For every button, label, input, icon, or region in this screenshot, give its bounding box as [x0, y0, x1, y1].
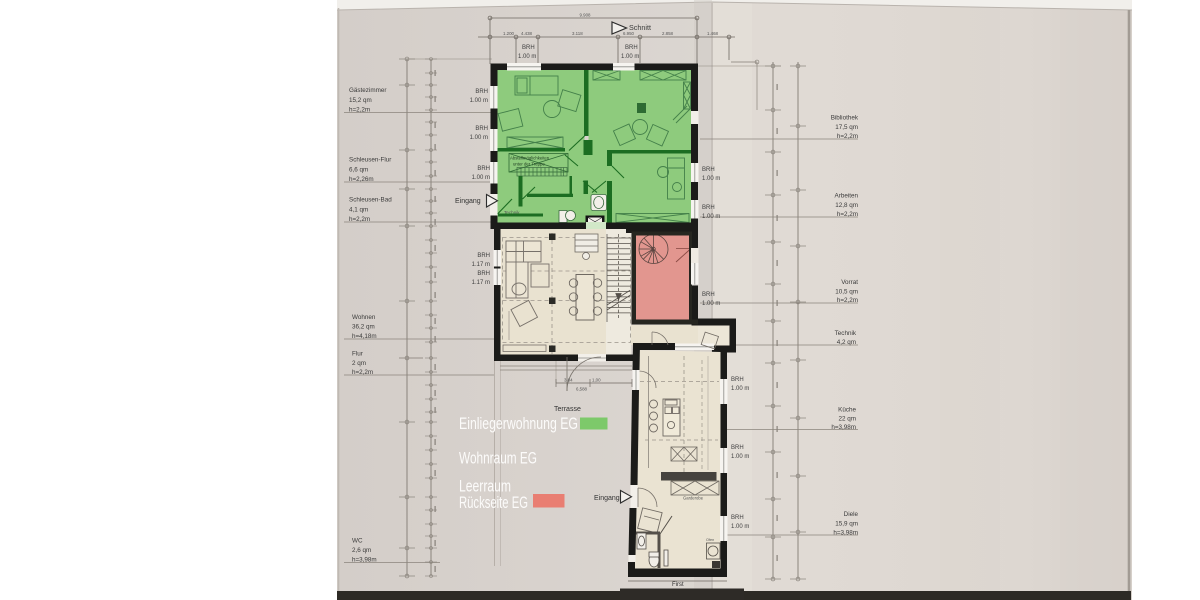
svg-text:h=2,2m: h=2,2m: [349, 107, 370, 114]
svg-text:1.00 m: 1.00 m: [470, 98, 488, 104]
svg-text:Eingang: Eingang: [455, 198, 481, 205]
svg-text:Schleusen-Bad: Schleusen-Bad: [349, 197, 392, 204]
svg-text:BRH: BRH: [477, 166, 490, 172]
svg-text:h=2,26m: h=2,26m: [349, 176, 374, 183]
svg-text:BRH: BRH: [702, 205, 715, 211]
svg-text:h=2,2m: h=2,2m: [352, 369, 373, 376]
svg-text:1.17 m: 1.17 m: [472, 262, 490, 268]
svg-text:1.00 m: 1.00 m: [472, 175, 490, 181]
svg-text:1.00 m: 1.00 m: [731, 386, 749, 392]
svg-text:Vorrat: Vorrat: [841, 279, 858, 286]
svg-text:6.950: 6.950: [623, 31, 635, 36]
svg-text:1.00 m: 1.00 m: [702, 176, 720, 182]
svg-text:WC: WC: [352, 538, 363, 545]
svg-text:6,588: 6,588: [576, 387, 588, 392]
svg-text:BRH: BRH: [731, 515, 744, 521]
svg-text:Technik: Technik: [835, 330, 857, 337]
svg-text:h=4,18m: h=4,18m: [352, 333, 377, 340]
svg-text:1.00 m: 1.00 m: [731, 524, 749, 530]
svg-text:4,1 qm: 4,1 qm: [349, 207, 368, 214]
svg-text:Eingang: Eingang: [594, 495, 620, 502]
svg-text:Wohnraum EG: Wohnraum EG: [459, 450, 537, 468]
svg-text:Schleusen-Flur: Schleusen-Flur: [349, 157, 391, 164]
svg-text:1.468: 1.468: [707, 31, 719, 36]
svg-text:17,5 qm: 17,5 qm: [835, 124, 858, 131]
svg-text:1.00 m: 1.00 m: [518, 54, 536, 60]
svg-text:2.858: 2.858: [662, 31, 674, 36]
svg-text:h=3,98m: h=3,98m: [833, 530, 858, 537]
svg-text:h=2,2m: h=2,2m: [349, 216, 370, 223]
svg-text:h=3,98m: h=3,98m: [352, 557, 377, 564]
svg-text:2 qm: 2 qm: [352, 360, 366, 367]
svg-text:Bibliothek: Bibliothek: [831, 115, 859, 122]
svg-text:Diele: Diele: [844, 511, 859, 518]
svg-text:BRH: BRH: [731, 377, 744, 383]
svg-text:4.438: 4.438: [521, 31, 533, 36]
svg-text:6,6 qm: 6,6 qm: [349, 167, 368, 174]
svg-text:1.17 m: 1.17 m: [472, 280, 490, 286]
svg-text:Arbeiten: Arbeiten: [835, 193, 859, 200]
svg-text:Flur: Flur: [352, 351, 363, 358]
svg-text:BRH: BRH: [731, 445, 744, 451]
svg-text:1.00 m: 1.00 m: [702, 301, 720, 307]
svg-text:Garderobe: Garderobe: [683, 496, 704, 501]
svg-text:9.908: 9.908: [580, 13, 592, 18]
svg-text:12,8 qm: 12,8 qm: [835, 202, 858, 209]
svg-text:BRH: BRH: [477, 271, 490, 277]
svg-text:BRH: BRH: [702, 167, 715, 173]
svg-text:BRH: BRH: [702, 292, 715, 298]
svg-text:h=3,98m: h=3,98m: [831, 424, 856, 431]
svg-text:1.00 m: 1.00 m: [731, 454, 749, 460]
svg-text:Abstellmöglichkeiten: Abstellmöglichkeiten: [510, 156, 550, 161]
svg-text:Wohnen: Wohnen: [352, 314, 376, 321]
svg-text:1.00 m: 1.00 m: [621, 54, 639, 60]
svg-text:15,2 qm: 15,2 qm: [349, 97, 372, 104]
svg-text:3.118: 3.118: [572, 31, 583, 36]
svg-text:15,9 qm: 15,9 qm: [835, 521, 858, 528]
svg-text:Leerraum: Leerraum: [459, 478, 511, 496]
svg-text:BRH: BRH: [475, 126, 488, 132]
svg-text:h=2,2m: h=2,2m: [837, 133, 858, 140]
svg-text:Terrasse: Terrasse: [554, 406, 581, 413]
svg-text:unter der Treppe: unter der Treppe: [513, 162, 545, 167]
svg-text:2,6 qm: 2,6 qm: [352, 547, 371, 554]
svg-text:3,84: 3,84: [564, 378, 573, 383]
svg-text:h=2,2m: h=2,2m: [837, 211, 858, 218]
svg-text:Rückseite EG: Rückseite EG: [459, 494, 528, 512]
svg-text:4,2 qm: 4,2 qm: [837, 339, 856, 346]
svg-text:36,2 qm: 36,2 qm: [352, 324, 375, 331]
svg-text:1,00: 1,00: [592, 378, 601, 383]
svg-text:BRH: BRH: [477, 253, 490, 259]
svg-text:10,5 qm: 10,5 qm: [835, 289, 858, 296]
svg-text:BRH: BRH: [625, 45, 638, 51]
svg-text:Küche: Küche: [838, 407, 856, 414]
svg-text:BRH: BRH: [522, 45, 535, 51]
svg-text:Ofen: Ofen: [706, 538, 714, 542]
svg-text:Gästezimmer: Gästezimmer: [349, 87, 386, 94]
svg-text:1.00 m: 1.00 m: [470, 135, 488, 141]
svg-text:1.200: 1.200: [503, 31, 515, 36]
svg-text:h=2,2m: h=2,2m: [837, 297, 858, 304]
svg-text:First: First: [672, 582, 684, 588]
svg-text:BRH: BRH: [475, 89, 488, 95]
svg-text:Einliegerwohnung EG: Einliegerwohnung EG: [459, 415, 578, 433]
svg-text:1.00 m: 1.00 m: [702, 214, 720, 220]
svg-text:22 qm: 22 qm: [838, 416, 856, 423]
